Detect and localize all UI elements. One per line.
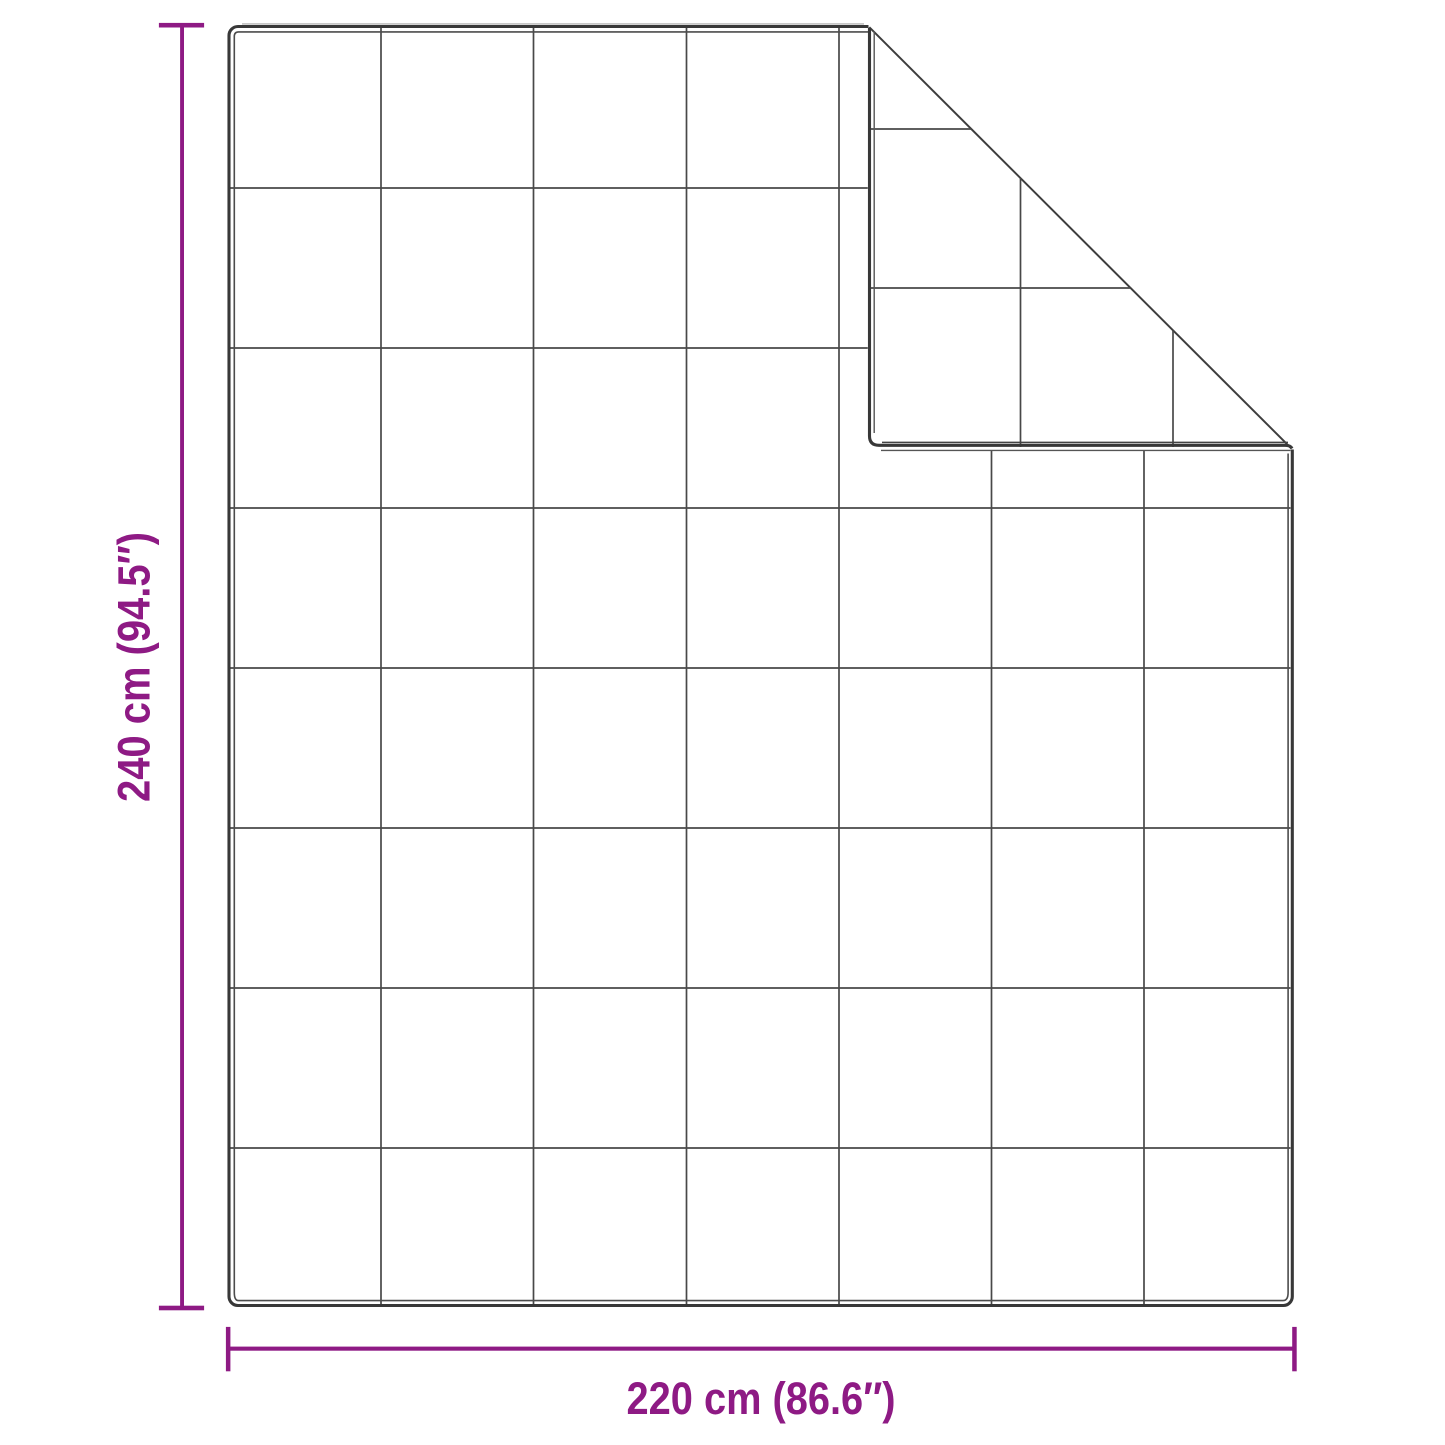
- svg-text:240 cm (94.5″): 240 cm (94.5″): [109, 532, 160, 802]
- svg-text:220 cm (86.6″): 220 cm (86.6″): [627, 1373, 896, 1424]
